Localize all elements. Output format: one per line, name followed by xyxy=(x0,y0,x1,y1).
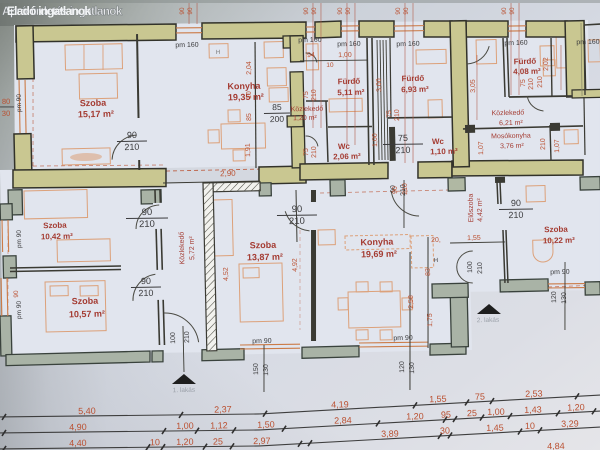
svg-text:1,20: 1,20 xyxy=(406,411,424,421)
svg-text:3,76 m²: 3,76 m² xyxy=(500,143,525,151)
svg-text:75: 75 xyxy=(303,91,310,99)
svg-text:90: 90 xyxy=(141,276,151,286)
svg-text:210: 210 xyxy=(311,89,318,101)
svg-text:3,89: 3,89 xyxy=(381,429,399,439)
svg-text:25: 25 xyxy=(467,408,477,418)
svg-text:Közlekedő: Közlekedő xyxy=(291,106,324,114)
svg-text:1,07: 1,07 xyxy=(478,141,485,155)
svg-text:1,75: 1,75 xyxy=(427,313,434,327)
svg-text:90: 90 xyxy=(311,7,318,15)
svg-text:90: 90 xyxy=(179,7,186,15)
svg-text:Szoba: Szoba xyxy=(80,98,108,109)
svg-text:20,: 20, xyxy=(431,237,441,244)
svg-text:210: 210 xyxy=(477,262,484,274)
svg-text:95: 95 xyxy=(441,410,451,420)
svg-text:13,87 m²: 13,87 m² xyxy=(247,252,283,263)
svg-text:130: 130 xyxy=(561,292,568,304)
svg-text:210: 210 xyxy=(395,145,410,155)
svg-text:75: 75 xyxy=(303,148,310,156)
svg-text:4,08 m²: 4,08 m² xyxy=(513,67,541,77)
svg-text:1,20 m²: 1,20 m² xyxy=(293,115,318,123)
svg-text:Fürdő: Fürdő xyxy=(338,77,361,87)
svg-text:90: 90 xyxy=(509,7,516,15)
svg-text:90: 90 xyxy=(395,7,402,15)
svg-text:1,50: 1,50 xyxy=(257,419,275,429)
svg-text:3,05: 3,05 xyxy=(470,79,477,93)
svg-text:90: 90 xyxy=(142,207,153,218)
svg-text:H: H xyxy=(434,258,438,264)
svg-text:6,93 m²: 6,93 m² xyxy=(401,85,429,95)
svg-text:Szoba: Szoba xyxy=(43,221,67,231)
svg-text:210: 210 xyxy=(394,109,401,121)
svg-text:pm 90: pm 90 xyxy=(16,94,23,113)
svg-text:210: 210 xyxy=(528,78,535,90)
svg-text:2,04: 2,04 xyxy=(246,61,253,75)
svg-text:2,90: 2,90 xyxy=(220,169,236,178)
svg-text:Eladó ingatlanok: Eladó ingatlanok xyxy=(7,4,91,18)
svg-text:4,92: 4,92 xyxy=(292,258,299,272)
svg-text:4,52: 4,52 xyxy=(223,267,230,281)
svg-text:2,37: 2,37 xyxy=(214,404,232,414)
svg-text:90: 90 xyxy=(501,7,508,15)
svg-text:210: 210 xyxy=(138,288,153,298)
svg-text:Wc: Wc xyxy=(432,137,445,146)
svg-text:pm 90: pm 90 xyxy=(16,301,23,320)
svg-text:Konyha: Konyha xyxy=(227,81,261,92)
svg-text:25: 25 xyxy=(213,436,223,446)
svg-text:200: 200 xyxy=(270,114,285,124)
svg-text:Közlekedő: Közlekedő xyxy=(179,232,187,265)
svg-text:5,40: 5,40 xyxy=(78,406,96,416)
svg-text:2,97: 2,97 xyxy=(253,436,271,446)
svg-text:pm 90: pm 90 xyxy=(550,269,570,276)
svg-text:75: 75 xyxy=(520,79,527,87)
svg-text:pm 160: pm 160 xyxy=(504,40,528,48)
svg-text:Fürdő: Fürdő xyxy=(401,74,424,84)
svg-text:210: 210 xyxy=(537,76,544,88)
svg-text:90: 90 xyxy=(337,7,344,15)
svg-text:10: 10 xyxy=(150,437,160,447)
svg-text:15,17 m²: 15,17 m² xyxy=(78,109,114,120)
svg-text:2,06 m²: 2,06 m² xyxy=(333,152,361,162)
svg-text:6,21 m²: 6,21 m² xyxy=(499,120,524,128)
svg-text:1,20: 1,20 xyxy=(567,402,585,412)
svg-text:30: 30 xyxy=(440,426,450,436)
svg-text:pm 160: pm 160 xyxy=(337,41,361,49)
svg-text:pm 160: pm 160 xyxy=(175,42,199,50)
svg-text:1,55: 1,55 xyxy=(429,394,447,404)
svg-text:2,53: 2,53 xyxy=(525,389,543,399)
svg-text:1,12: 1,12 xyxy=(210,420,228,430)
svg-text:1,07: 1,07 xyxy=(554,139,561,153)
svg-text:90: 90 xyxy=(345,7,352,15)
svg-text:90: 90 xyxy=(13,290,20,298)
svg-text:10: 10 xyxy=(525,421,535,431)
svg-text:100: 100 xyxy=(467,261,474,273)
svg-text:Fürdő: Fürdő xyxy=(514,57,537,67)
svg-text:210: 210 xyxy=(289,216,305,227)
svg-text:5,11 m²: 5,11 m² xyxy=(337,88,365,98)
svg-text:1,10 m²: 1,10 m² xyxy=(430,147,458,157)
svg-text:4,42 m²: 4,42 m² xyxy=(477,197,485,222)
svg-text:85: 85 xyxy=(246,113,253,121)
svg-text:1,43: 1,43 xyxy=(524,405,542,415)
svg-text:10,57 m²: 10,57 m² xyxy=(69,309,105,320)
svg-text:90: 90 xyxy=(403,7,410,15)
svg-text:210: 210 xyxy=(311,146,318,158)
svg-text:75: 75 xyxy=(475,392,485,402)
svg-text:Előszoba: Előszoba xyxy=(468,193,476,222)
svg-text:1,91: 1,91 xyxy=(245,143,252,157)
svg-text:1,45: 1,45 xyxy=(486,423,504,433)
svg-text:pm 90: pm 90 xyxy=(16,230,23,249)
svg-text:85: 85 xyxy=(272,102,282,112)
svg-text:1. lakás: 1. lakás xyxy=(173,387,196,395)
svg-text:2,58: 2,58 xyxy=(408,295,415,309)
svg-text:2,02: 2,02 xyxy=(543,57,550,71)
svg-text:1,00: 1,00 xyxy=(176,421,194,431)
svg-text:100: 100 xyxy=(170,332,177,344)
svg-text:pm 160: pm 160 xyxy=(576,39,600,47)
svg-text:1,00: 1,00 xyxy=(487,407,505,417)
svg-text:30: 30 xyxy=(2,109,11,118)
svg-text:80: 80 xyxy=(2,97,11,106)
svg-text:3,29: 3,29 xyxy=(561,419,579,429)
svg-text:90: 90 xyxy=(292,204,303,215)
svg-text:90: 90 xyxy=(127,130,137,140)
svg-text:210: 210 xyxy=(540,138,547,150)
svg-text:210: 210 xyxy=(402,183,409,195)
svg-text:1,55: 1,55 xyxy=(467,235,481,242)
svg-text:4,40: 4,40 xyxy=(69,438,87,448)
svg-text:H: H xyxy=(216,50,220,56)
svg-text:130: 130 xyxy=(263,364,270,376)
svg-text:Mosókonyha: Mosókonyha xyxy=(491,133,531,141)
svg-text:90: 90 xyxy=(303,7,310,15)
svg-text:90: 90 xyxy=(392,186,399,194)
svg-text:2. lakás: 2. lakás xyxy=(477,317,500,325)
svg-text:19,69 m²: 19,69 m² xyxy=(361,249,397,260)
svg-text:10: 10 xyxy=(246,91,253,99)
svg-text:3,00: 3,00 xyxy=(376,78,383,92)
svg-text:210: 210 xyxy=(139,219,155,230)
svg-text:5,72 m²: 5,72 m² xyxy=(189,235,197,260)
svg-text:1,20: 1,20 xyxy=(176,437,194,447)
svg-text:210: 210 xyxy=(124,142,139,152)
svg-text:94: 94 xyxy=(307,52,315,59)
svg-text:10: 10 xyxy=(326,62,334,69)
svg-text:120: 120 xyxy=(551,291,558,303)
svg-text:10,42 m²: 10,42 m² xyxy=(41,232,73,242)
svg-text:130: 130 xyxy=(409,362,416,374)
svg-text:Wc: Wc xyxy=(338,142,351,151)
svg-text:90: 90 xyxy=(187,7,194,15)
svg-text:1,00: 1,00 xyxy=(372,133,379,147)
svg-text:4,90: 4,90 xyxy=(69,422,87,432)
svg-text:Konyha: Konyha xyxy=(360,237,394,248)
svg-text:Szoba: Szoba xyxy=(544,225,568,235)
svg-text:Szoba: Szoba xyxy=(72,296,100,307)
svg-text:Szoba: Szoba xyxy=(250,240,278,251)
svg-text:210: 210 xyxy=(508,210,523,220)
svg-text:2,84: 2,84 xyxy=(334,415,352,425)
svg-text:120: 120 xyxy=(399,361,406,373)
svg-text:pm 90: pm 90 xyxy=(252,338,272,345)
svg-text:pm 90: pm 90 xyxy=(393,335,413,342)
svg-text:4,19: 4,19 xyxy=(331,399,349,409)
svg-text:83: 83 xyxy=(425,268,432,276)
svg-text:Közlekedő: Közlekedő xyxy=(492,110,525,118)
svg-text:210: 210 xyxy=(184,331,191,343)
svg-text:75: 75 xyxy=(386,110,393,118)
svg-text:90: 90 xyxy=(511,198,521,208)
svg-text:1,00: 1,00 xyxy=(338,52,352,59)
svg-text:pm 160: pm 160 xyxy=(396,41,420,49)
svg-text:4,84: 4,84 xyxy=(547,441,565,450)
svg-text:pm 160: pm 160 xyxy=(298,37,322,45)
svg-text:10,22 m²: 10,22 m² xyxy=(543,236,575,246)
svg-text:150: 150 xyxy=(253,363,260,375)
svg-text:75: 75 xyxy=(398,133,408,143)
